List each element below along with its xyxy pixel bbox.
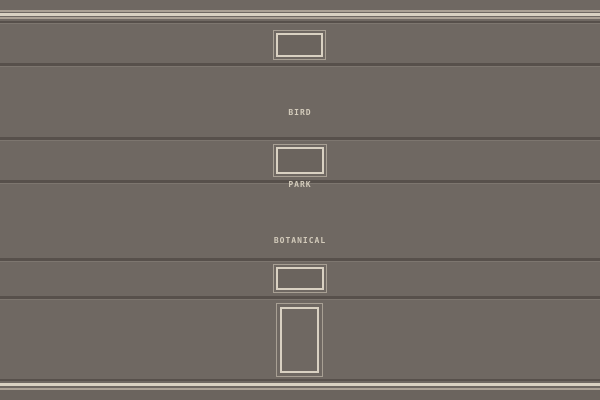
crown-molding-cream (0, 13, 600, 16)
picture-frame-top[interactable] (273, 30, 326, 60)
wall-separator (0, 379, 600, 381)
picture-frame-mat (276, 267, 324, 290)
sign-line: PARK (220, 179, 380, 191)
floor-strip (0, 390, 600, 400)
picture-frame-mat (276, 147, 324, 174)
wall-separator (0, 63, 600, 67)
wall-separator (0, 21, 600, 24)
gallery-wall-scene: BIRD IN THE PARK BOTANICAL GARDEN (0, 0, 600, 400)
sign-line: BOTANICAL (220, 235, 380, 247)
picture-frame-middle[interactable] (273, 144, 327, 177)
crown-molding-light-top (0, 10, 600, 12)
baseboard-cream (0, 383, 600, 386)
picture-frame-mat (276, 33, 323, 57)
sign-line: BIRD (220, 107, 380, 119)
crown-molding-light-bottom (0, 17, 600, 19)
picture-frame-bottom[interactable] (273, 264, 327, 293)
door-frame[interactable] (276, 303, 323, 377)
door-panel (280, 307, 319, 373)
